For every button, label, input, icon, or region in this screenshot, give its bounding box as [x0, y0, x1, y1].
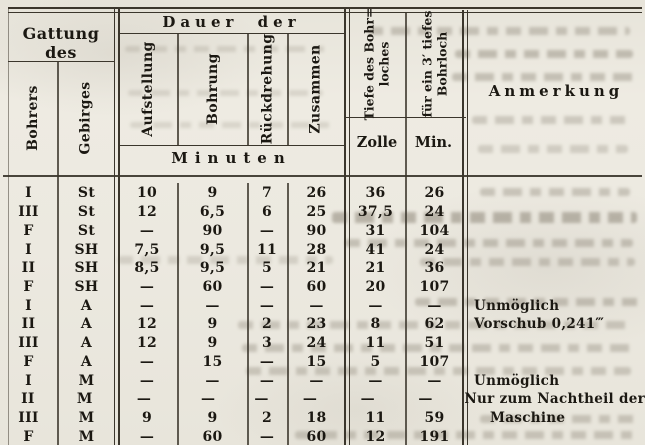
table-row: F St — 90 — 90 31 104 — [0, 221, 645, 240]
cell-bohrung: 9,5 — [178, 242, 247, 258]
cell-aufstellung: — — [116, 354, 178, 370]
cell-zolle: 8 — [346, 316, 405, 332]
cell-aufstellung: 12 — [116, 316, 178, 332]
cell-aufstellung: 10 — [116, 185, 178, 201]
table-row: II M — — — — — — Nur zum Nachtheil der — [0, 390, 645, 409]
table-row: F M — 60 — 60 12 191 — [0, 427, 645, 445]
cell-bohrung: — — [174, 391, 242, 407]
bleedthrough-smudge — [478, 145, 628, 153]
cell-zolle: 21 — [346, 260, 405, 276]
cell-aufstellung: — — [114, 391, 175, 407]
cell-min: 24 — [405, 204, 464, 220]
cell-bohrung: 9 — [178, 185, 247, 201]
cell-zolle: 37,5 — [346, 204, 405, 220]
cell-aufstellung: — — [116, 223, 178, 239]
cell-rueckdrehung: 2 — [247, 410, 287, 426]
cell-min: 59 — [405, 410, 464, 426]
cell-gebirge: M — [57, 410, 116, 426]
table-rule-top-thick — [8, 7, 642, 10]
cell-zolle: 5 — [346, 354, 405, 370]
cell-bohrer: F — [0, 354, 57, 370]
cell-zusammen: 60 — [287, 429, 346, 445]
cell-min: 24 — [405, 242, 464, 258]
cell-aufstellung: 12 — [116, 204, 178, 220]
cell-zolle: — — [346, 373, 405, 389]
column-header-zusammen: Zusammen — [287, 35, 345, 143]
cell-zolle: 20 — [346, 279, 405, 295]
cell-gebirge: M — [57, 429, 116, 445]
table-row: III M 9 9 2 18 11 59 Maschine — [0, 409, 645, 428]
cell-zolle: 36 — [346, 185, 405, 201]
cell-gebirge: St — [57, 204, 116, 220]
column-header-fuer-ein-3-tiefes-bohrloch: für ein 3′ tiefesBohrloch — [406, 12, 463, 116]
cell-min: — — [405, 298, 464, 314]
cell-zusammen: 28 — [287, 242, 346, 258]
cell-bohrung: 60 — [178, 279, 247, 295]
cell-bohrung: 9,5 — [178, 260, 247, 276]
cell-gebirge: M — [57, 373, 116, 389]
cell-rueckdrehung: — — [242, 391, 281, 407]
table-row: F A — 15 — 15 5 107 — [0, 352, 645, 371]
table-rule-above-minuten — [118, 145, 344, 146]
table-row: II A 12 9 2 23 8 62 Vorschub 0,241‴ — [0, 315, 645, 334]
cell-gebirge: SH — [57, 242, 116, 258]
header-min: Min. — [405, 134, 462, 151]
cell-zolle: 11 — [346, 410, 405, 426]
header-gattung-des: Gattung des — [8, 24, 114, 62]
cell-bohrung: 9 — [178, 316, 247, 332]
cell-bohrer: F — [0, 429, 57, 445]
cell-gebirge: A — [57, 354, 116, 370]
cell-bohrung: 6,5 — [178, 204, 247, 220]
cell-bohrer: III — [0, 204, 57, 220]
cell-bohrer: I — [0, 242, 57, 258]
column-header-rueckdrehung: Rückdrehung — [247, 35, 287, 143]
cell-aufstellung: 7,5 — [116, 242, 178, 258]
column-header-aufstellung: Aufstellung — [118, 35, 178, 143]
cell-anmerkung: Maschine — [464, 410, 645, 426]
table-body: I St 10 9 7 26 36 26 III St 12 6,5 6 25 … — [0, 184, 645, 445]
cell-zolle: — — [339, 391, 397, 407]
cell-gebirge: St — [57, 185, 116, 201]
header-dauer-der: Dauer der — [118, 13, 345, 31]
cell-min: 107 — [405, 279, 464, 295]
cell-bohrung: 90 — [178, 223, 247, 239]
cell-zusammen: — — [287, 298, 346, 314]
cell-bohrer: I — [0, 373, 57, 389]
table-row: I M — — — — — — Unmöglich — [0, 371, 645, 390]
cell-aufstellung: 9 — [116, 410, 178, 426]
cell-min: — — [397, 391, 455, 407]
cell-min: 191 — [405, 429, 464, 445]
cell-zusammen: — — [287, 373, 346, 389]
cell-rueckdrehung: — — [247, 354, 287, 370]
bleedthrough-smudge — [472, 116, 630, 124]
bleedthrough-smudge — [452, 73, 637, 81]
cell-zusammen: 26 — [287, 185, 346, 201]
cell-anmerkung: Nur zum Nachtheil der — [454, 391, 645, 407]
cell-aufstellung: — — [116, 373, 178, 389]
cell-rueckdrehung: — — [247, 279, 287, 295]
cell-min: 62 — [405, 316, 464, 332]
cell-bohrung: 9 — [178, 410, 247, 426]
table-row: II SH 8,5 9,5 5 21 21 36 — [0, 259, 645, 278]
cell-zusammen: — — [281, 391, 339, 407]
table-row: I St 10 9 7 26 36 26 — [0, 184, 645, 203]
cell-zusammen: 24 — [287, 335, 346, 351]
cell-bohrer: III — [0, 335, 57, 351]
cell-rueckdrehung: 3 — [247, 335, 287, 351]
cell-anmerkung: Unmöglich — [464, 373, 645, 389]
cell-bohrer: II — [0, 260, 57, 276]
header-zolle: Zolle — [349, 134, 405, 151]
cell-bohrer: I — [0, 185, 57, 201]
cell-rueckdrehung: — — [247, 223, 287, 239]
cell-anmerkung: Unmöglich — [464, 298, 645, 314]
cell-rueckdrehung: — — [247, 429, 287, 445]
column-header-gebirges: Gebirges — [57, 64, 115, 172]
cell-gebirge: A — [57, 335, 116, 351]
cell-aufstellung: — — [116, 298, 178, 314]
table-row: I SH 7,5 9,5 11 28 41 24 — [0, 240, 645, 259]
cell-gebirge: A — [57, 298, 116, 314]
column-header-bohrung: Bohrung — [178, 35, 247, 143]
cell-rueckdrehung: 7 — [247, 185, 287, 201]
cell-gebirge: St — [57, 223, 116, 239]
column-header-tiefe-des-bohrloches: Tiefe des Bohr=loches — [347, 12, 405, 116]
cell-gebirge: A — [57, 316, 116, 332]
table-rule-header-separator — [3, 175, 642, 177]
header-minuten: Minuten — [118, 149, 345, 167]
cell-bohrung: 60 — [178, 429, 247, 445]
cell-min: 26 — [405, 185, 464, 201]
cell-zusammen: 23 — [287, 316, 346, 332]
cell-rueckdrehung: 6 — [247, 204, 287, 220]
cell-bohrer: II — [0, 316, 57, 332]
cell-aufstellung: — — [116, 429, 178, 445]
cell-bohrer: F — [0, 223, 57, 239]
cell-min: 104 — [405, 223, 464, 239]
cell-gebirge: M — [56, 391, 114, 407]
cell-anmerkung: Vorschub 0,241‴ — [464, 316, 645, 332]
cell-zusammen: 25 — [287, 204, 346, 220]
cell-zusammen: 60 — [287, 279, 346, 295]
table-row: I A — — — — — — Unmöglich — [0, 296, 645, 315]
table-row: III A 12 9 3 24 11 51 — [0, 334, 645, 353]
cell-rueckdrehung: 5 — [247, 260, 287, 276]
header-anmerkung: Anmerkung — [470, 82, 642, 100]
cell-zusammen: 90 — [287, 223, 346, 239]
cell-min: 107 — [405, 354, 464, 370]
cell-aufstellung: 12 — [116, 335, 178, 351]
table-row: III St 12 6,5 6 25 37,5 24 — [0, 203, 645, 222]
cell-bohrung: 15 — [178, 354, 247, 370]
cell-bohrung: — — [178, 373, 247, 389]
cell-zolle: 31 — [346, 223, 405, 239]
cell-bohrer: I — [0, 298, 57, 314]
cell-bohrung: 9 — [178, 335, 247, 351]
cell-min: 51 — [405, 335, 464, 351]
cell-min: 36 — [405, 260, 464, 276]
cell-zolle: 41 — [346, 242, 405, 258]
cell-rueckdrehung: — — [247, 373, 287, 389]
cell-zolle: 12 — [346, 429, 405, 445]
column-header-bohrers: Bohrers — [8, 64, 57, 172]
cell-bohrer: II — [0, 391, 56, 407]
cell-gebirge: SH — [57, 260, 116, 276]
cell-aufstellung: — — [116, 279, 178, 295]
cell-zolle: — — [346, 298, 405, 314]
cell-bohrer: III — [0, 410, 57, 426]
cell-zusammen: 18 — [287, 410, 346, 426]
cell-rueckdrehung: 2 — [247, 316, 287, 332]
table-row: F SH — 60 — 60 20 107 — [0, 278, 645, 297]
cell-bohrung: — — [178, 298, 247, 314]
cell-rueckdrehung: — — [247, 298, 287, 314]
cell-bohrer: F — [0, 279, 57, 295]
cell-gebirge: SH — [57, 279, 116, 295]
cell-rueckdrehung: 11 — [247, 242, 287, 258]
scanned-book-page: Gattung des Dauer der Anmerkung Minuten … — [0, 0, 645, 445]
table-rule-under-dauer — [118, 33, 344, 34]
bleedthrough-smudge — [455, 50, 633, 58]
cell-min: — — [405, 373, 464, 389]
cell-aufstellung: 8,5 — [116, 260, 178, 276]
cell-zusammen: 21 — [287, 260, 346, 276]
cell-zusammen: 15 — [287, 354, 346, 370]
cell-zolle: 11 — [346, 335, 405, 351]
